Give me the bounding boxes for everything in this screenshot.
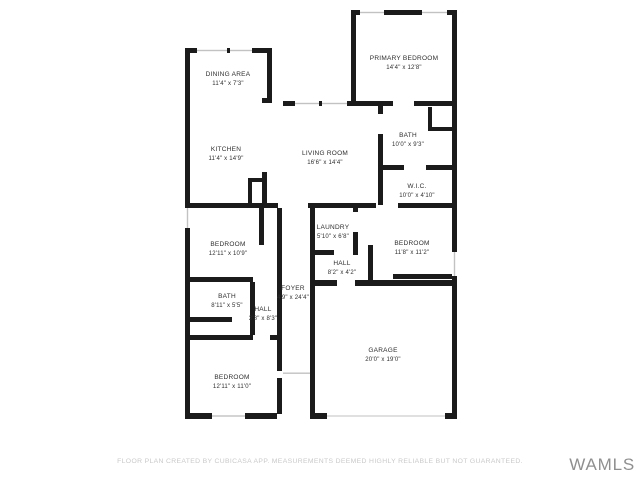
garage-door [327,413,445,419]
bedroom-side-window-right [452,252,457,276]
wamls-watermark: WAMLS [569,455,635,475]
living-room-window [295,101,347,106]
primary-bedroom-window-right [422,10,447,15]
floor-plan-page: { "plan": { "rooms": [ {"name": "DINING … [0,0,640,480]
bedroom-bottom-window [212,413,245,419]
floor-plan-drawing [0,0,640,480]
primary-bedroom-window-left [360,10,384,15]
walls [185,10,457,419]
disclaimer-text: FLOOR PLAN CREATED BY CUBICASA APP. MEAS… [0,458,640,465]
bedroom-side-window-left [185,208,190,228]
dining-window [197,48,252,53]
windows [185,10,457,419]
front-door-threshold [283,373,310,374]
